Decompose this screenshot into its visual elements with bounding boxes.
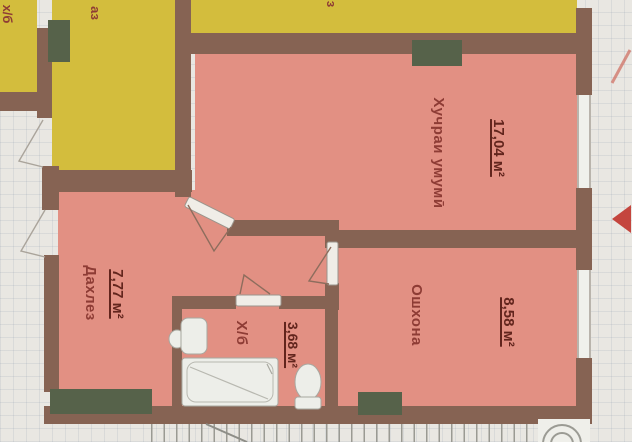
door-leaf-bath — [236, 295, 281, 306]
stamp-circle-icon — [543, 425, 581, 442]
door-leaf-kitchen — [327, 242, 338, 285]
stairs-diagonal — [206, 424, 247, 442]
room-label-bath: Х/б — [232, 313, 250, 353]
room-label-hall: Дахлез — [81, 253, 99, 333]
door-swing-outer-lower — [21, 210, 45, 257]
room-area-living: 17,04 м² — [489, 110, 507, 186]
door-swing-outer-upper — [19, 120, 43, 167]
text-fragment-top-mid: з — [322, 0, 340, 12]
room-area-bath: 3,68 м² — [284, 313, 302, 377]
room-area-hall: 7,77 м² — [108, 258, 126, 330]
room-label-kitchen: Ошхона — [407, 270, 425, 360]
bathtub — [182, 358, 278, 406]
room-label-living: Хучраи умумӣ — [429, 73, 447, 233]
plan-overlay — [0, 0, 632, 442]
sink — [169, 318, 207, 354]
floor-plan: Хучраи умумӣ 17,04 м² Ошхона 8,58 м² Дах… — [0, 0, 632, 442]
red-arrow-mark — [612, 205, 631, 233]
red-line-mark — [612, 50, 630, 83]
door-swing-bath — [240, 275, 270, 294]
text-fragment-top-left-2: аз — [86, 0, 104, 28]
room-area-kitchen: 8,58 м² — [499, 286, 517, 358]
text-fragment-top-left: х/б — [0, 0, 16, 34]
